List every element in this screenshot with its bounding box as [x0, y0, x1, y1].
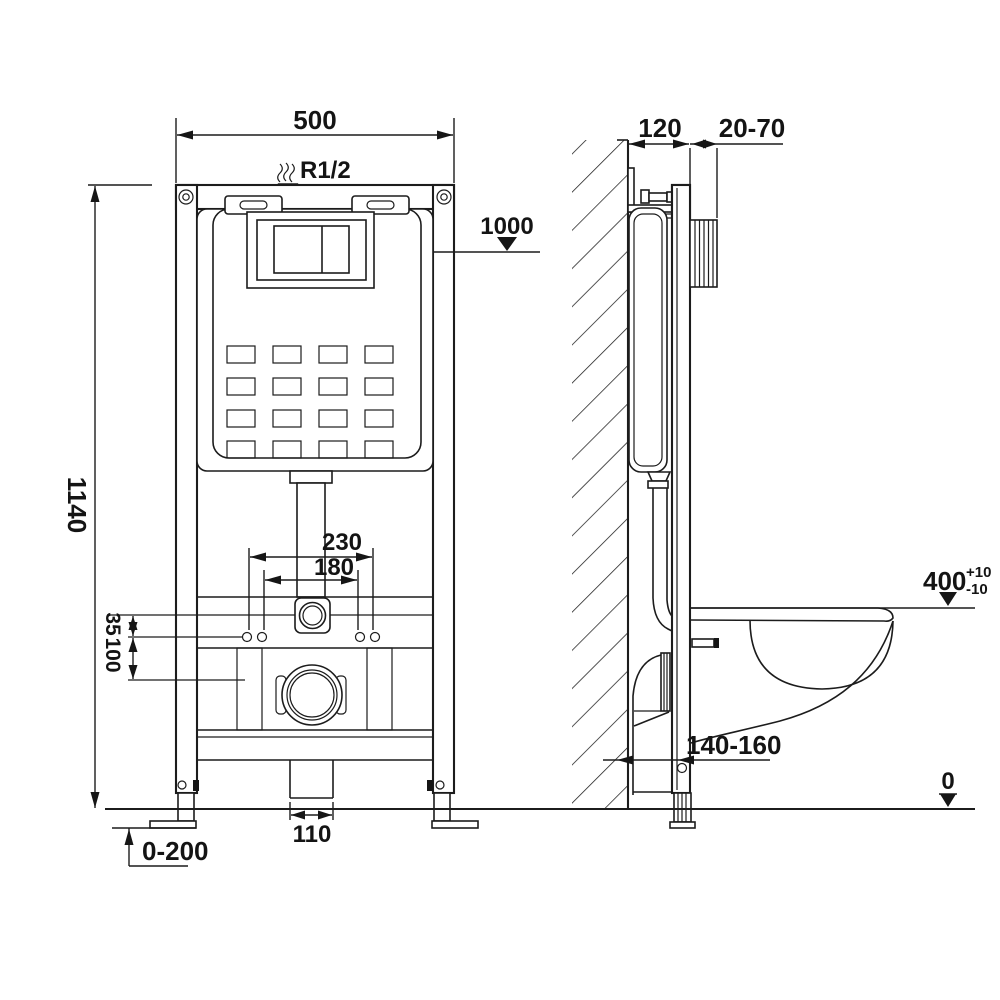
- bolt-hole: [258, 633, 267, 642]
- dim-label-r12: R1/2: [300, 157, 351, 184]
- side-foot: [670, 793, 695, 828]
- dim-outlet-range: 140-160: [603, 730, 781, 765]
- dim-label-400-plus: +10: [966, 564, 991, 581]
- dim-label-20-70: 20-70: [719, 113, 786, 143]
- dim-label-140-160: 140-160: [686, 730, 781, 760]
- dim-label-100: 100: [101, 637, 124, 672]
- installation-drawing: 500 R1/2: [0, 0, 1000, 1000]
- cistern: [197, 196, 433, 471]
- dim-label-400-minus: -10: [966, 581, 988, 598]
- drawing-canvas: 500 R1/2: [0, 0, 1000, 1000]
- dim-label-230: 230: [322, 529, 362, 556]
- bolt-hole: [243, 633, 252, 642]
- bolt-hole: [371, 633, 380, 642]
- dim-label-400: 400: [923, 566, 966, 596]
- drain-socket-box: [197, 648, 433, 760]
- dim-frame-depth: 120: [629, 113, 689, 149]
- side-plate: [367, 648, 392, 730]
- leg-clamp: [193, 780, 199, 791]
- dim-feet-range: 0-200: [112, 828, 209, 866]
- drain-socket: [282, 665, 342, 725]
- dim-offsets: 35 100: [101, 612, 138, 679]
- right-leg: [434, 793, 450, 821]
- dim-label-180: 180: [314, 554, 354, 581]
- dim-label-1140: 1140: [62, 477, 92, 533]
- dim-label-500: 500: [293, 105, 336, 135]
- drain-elbow: [633, 653, 672, 795]
- wall-hatch: [572, 140, 628, 809]
- toilet-bowl: [690, 608, 975, 743]
- dim-label-0: 0: [941, 768, 954, 795]
- dim-wall-range: 20-70: [690, 113, 785, 218]
- drain-pipe: [290, 760, 333, 798]
- mounting-crossbar: [107, 597, 433, 680]
- right-foot: [432, 821, 478, 828]
- dim-frame-height: 1140: [62, 185, 152, 808]
- flush-plate-side: [690, 220, 717, 287]
- dim-label-35: 35: [101, 612, 124, 636]
- cistern-side: [629, 208, 672, 631]
- fixing-stud: [692, 639, 714, 647]
- outlet-flange: [661, 653, 670, 711]
- wall: [572, 140, 628, 809]
- side-plate: [237, 648, 262, 730]
- dim-label-120: 120: [638, 113, 681, 143]
- bolt-hole: [356, 633, 365, 642]
- dim-label-1000: 1000: [480, 213, 533, 240]
- front-view: 500 R1/2: [62, 105, 540, 866]
- bracket-bolt: [641, 190, 649, 203]
- dim-bowl-height: 400 +10 -10: [923, 564, 991, 606]
- flush-funnel: [648, 472, 670, 481]
- dim-label-0-200: 0-200: [142, 836, 209, 866]
- dim-floor-datum: 0: [939, 768, 957, 807]
- side-frame-rail: [672, 185, 690, 793]
- dim-label-110: 110: [293, 821, 332, 848]
- left-leg: [178, 793, 194, 821]
- leg-clamp: [427, 780, 433, 791]
- flush-plate: [247, 212, 374, 288]
- side-view: 120 20-70: [572, 113, 991, 828]
- left-foot: [150, 821, 196, 828]
